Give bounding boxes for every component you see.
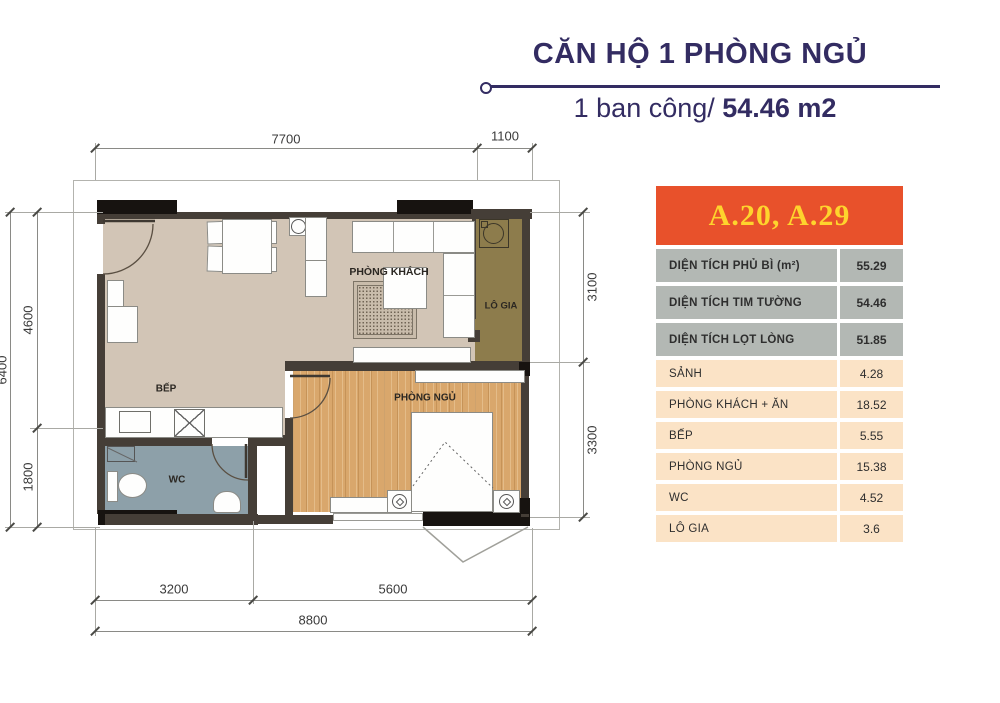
page: CĂN HỘ 1 PHÒNG NGỦ 1 ban công/ 54.46 m2 bbox=[0, 0, 1000, 703]
dining-table bbox=[222, 219, 272, 274]
row-label: SẢNH bbox=[656, 368, 837, 380]
wall-wc-bottom bbox=[105, 514, 258, 525]
dim-bottom-3200: 3200 bbox=[160, 582, 189, 597]
row-label: PHÒNG NGỦ bbox=[656, 461, 837, 473]
shower-tray bbox=[107, 446, 135, 462]
lamp-left-icon bbox=[392, 494, 407, 509]
row-label: DIỆN TÍCH LỌT LÒNG bbox=[656, 334, 837, 346]
foyer-cabinet-large bbox=[107, 306, 138, 343]
ext-line bbox=[5, 212, 103, 213]
living-room-label: PHÒNG KHÁCH bbox=[349, 266, 428, 278]
washer-detergent-box bbox=[481, 221, 488, 228]
row-label: PHÒNG KHÁCH + ĂN bbox=[656, 399, 837, 411]
dim-left-4600: 4600 bbox=[21, 306, 36, 335]
row-value: 18.52 bbox=[840, 398, 903, 412]
bedroom-desk bbox=[330, 497, 388, 513]
row-label: DIỆN TÍCH PHỦ BÌ (m²) bbox=[656, 260, 837, 272]
bedroom-window-band bbox=[333, 513, 423, 521]
lamp-right-bulb-icon bbox=[502, 497, 510, 505]
wall-wc-top-left bbox=[103, 438, 212, 446]
bay-window-lines-icon bbox=[423, 527, 528, 562]
floor-plan: PHÒNG KHÁCH LÔ GIA BẾP PHÒNG NGỦ WC 7700… bbox=[0, 0, 660, 703]
row-value: 54.46 bbox=[840, 296, 903, 310]
ext-line bbox=[5, 527, 100, 528]
row-label: BẾP bbox=[656, 430, 837, 442]
area-table-row: DIỆN TÍCH LỌT LÒNG 51.85 bbox=[656, 323, 903, 356]
balcony-label: LÔ GIA bbox=[485, 301, 518, 312]
area-table-row: DIỆN TÍCH TIM TƯỜNG 54.46 bbox=[656, 286, 903, 319]
ext-line bbox=[95, 528, 96, 636]
bedroom-label: PHÒNG NGỦ bbox=[394, 393, 456, 404]
wall-left bbox=[97, 274, 105, 514]
kitchen-sink bbox=[119, 411, 151, 433]
area-table-row: PHÒNG NGỦ 15.38 bbox=[656, 453, 903, 480]
row-value: 4.28 bbox=[840, 367, 903, 381]
wall-wc-right bbox=[248, 446, 257, 522]
toilet-tank bbox=[107, 471, 118, 502]
area-table-row: DIỆN TÍCH PHỦ BÌ (m²) 55.29 bbox=[656, 249, 903, 282]
unit-info-card: A.20, A.29 DIỆN TÍCH PHỦ BÌ (m²) 55.29 D… bbox=[656, 186, 903, 546]
wall-block-top-right bbox=[397, 200, 473, 214]
unit-number-header: A.20, A.29 bbox=[656, 186, 903, 245]
tall-cabinet bbox=[305, 217, 327, 297]
wc-sink bbox=[213, 491, 241, 513]
dim-right-3100: 3100 bbox=[585, 273, 600, 302]
foyer-cabinet-small bbox=[107, 280, 124, 307]
dim-bottom-8800: 8800 bbox=[299, 613, 328, 628]
lamp-left-bulb-icon bbox=[395, 497, 403, 505]
dim-top-7700: 7700 bbox=[272, 132, 301, 147]
row-value: 55.29 bbox=[840, 259, 903, 273]
row-label: LÔ GIA bbox=[656, 523, 837, 535]
wall-block-bedroom-sill bbox=[423, 512, 530, 526]
wall-left-stub-top bbox=[97, 214, 105, 224]
dim-line-left-outer bbox=[10, 212, 11, 527]
sofa-side-section bbox=[443, 253, 475, 338]
wall-balcony-right bbox=[522, 212, 530, 363]
ext-line bbox=[253, 521, 254, 604]
row-value: 3.6 bbox=[840, 522, 903, 536]
area-table-row: LÔ GIA 3.6 bbox=[656, 515, 903, 542]
wall-hall-bottom bbox=[258, 515, 333, 524]
row-value: 5.55 bbox=[840, 429, 903, 443]
row-value: 4.52 bbox=[840, 491, 903, 505]
dim-line-bottom-inner bbox=[95, 600, 532, 601]
toilet-bowl bbox=[118, 473, 147, 498]
dim-right-3300: 3300 bbox=[585, 426, 600, 455]
dim-line-bottom-outer bbox=[95, 631, 532, 632]
dim-line-top bbox=[95, 148, 532, 149]
area-table-row: WC 4.52 bbox=[656, 484, 903, 511]
wc-label: WC bbox=[169, 475, 186, 486]
sofa-back-section bbox=[352, 221, 475, 253]
kitchen-label: BẾP bbox=[156, 384, 177, 395]
area-table-row: BẾP 5.55 bbox=[656, 422, 903, 449]
ext-line bbox=[30, 428, 103, 429]
lamp-right-icon bbox=[499, 494, 514, 509]
dim-bottom-5600: 5600 bbox=[379, 582, 408, 597]
dim-left-1800: 1800 bbox=[21, 463, 36, 492]
ext-line bbox=[532, 528, 533, 636]
dim-line-left-inner bbox=[37, 212, 38, 527]
row-label: DIỆN TÍCH TIM TƯỜNG bbox=[656, 297, 837, 309]
tv-console bbox=[353, 347, 471, 363]
dim-left-6400: 6400 bbox=[0, 356, 10, 385]
row-value: 15.38 bbox=[840, 460, 903, 474]
row-label: WC bbox=[656, 492, 837, 504]
bed bbox=[411, 412, 493, 512]
kitchen-stove bbox=[174, 409, 205, 437]
row-value: 51.85 bbox=[840, 333, 903, 347]
area-table-row: SẢNH 4.28 bbox=[656, 360, 903, 387]
dim-line-right bbox=[583, 212, 584, 517]
wardrobe bbox=[415, 370, 525, 383]
wall-bedroom-left-lower bbox=[285, 418, 293, 522]
area-table-row: PHÒNG KHÁCH + ĂN 18.52 bbox=[656, 391, 903, 418]
subtitle-area-text: 54.46 m2 bbox=[722, 93, 836, 123]
dim-top-1100: 1100 bbox=[491, 129, 519, 144]
wall-bedroom-right bbox=[521, 362, 529, 517]
wall-block-top-left bbox=[97, 200, 177, 214]
wall-sink-basin-icon bbox=[291, 219, 306, 234]
